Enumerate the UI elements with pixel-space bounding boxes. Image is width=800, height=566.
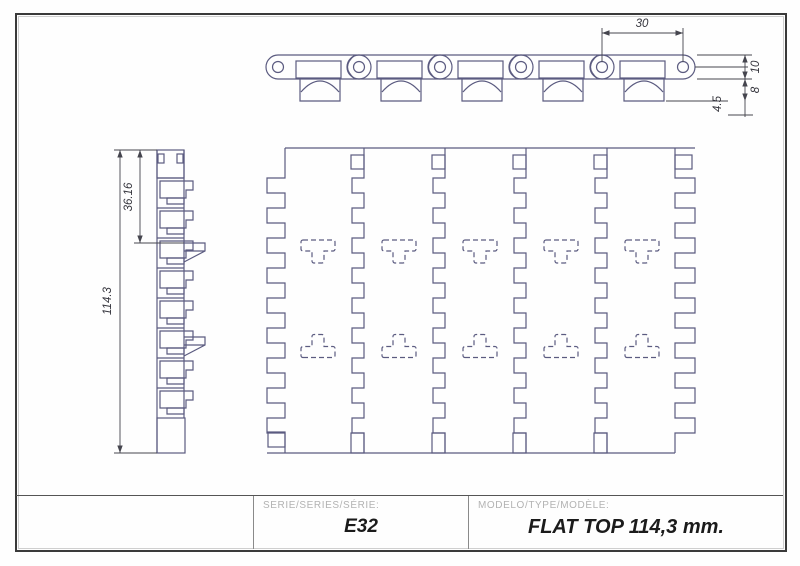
chain-link xyxy=(296,61,341,101)
title-block: SERIE/SERIES/SÉRIE: E32 MODELO/TYPE/MODÈ… xyxy=(16,495,783,549)
chain-link xyxy=(428,55,503,101)
plan-corner-slot xyxy=(675,155,692,169)
plan-left-edge xyxy=(267,148,285,453)
model-label: MODELO/TYPE/MODÈLE: xyxy=(478,500,609,511)
plan-hidden-tabs-upper xyxy=(301,240,659,263)
side-knuckle xyxy=(157,388,193,414)
chain-link xyxy=(347,55,422,101)
side-knuckle xyxy=(157,358,193,384)
model-cell: MODELO/TYPE/MODÈLE: FLAT TOP 114,3 mm. xyxy=(468,496,783,549)
series-value: E32 xyxy=(254,516,468,538)
side-tab-upper xyxy=(184,243,205,262)
plan-module-boundary xyxy=(432,148,445,453)
plan-module-boundary xyxy=(594,148,607,453)
chain-link xyxy=(590,55,665,101)
side-knuckle xyxy=(157,178,193,204)
model-value: FLAT TOP 114,3 mm. xyxy=(469,516,783,539)
drawing-canvas: 30 10 8 4.5 xyxy=(0,0,800,566)
plan-corner-slot xyxy=(268,432,285,447)
dim-overall-width: 114.3 xyxy=(102,286,114,315)
side-top-notch xyxy=(177,154,183,163)
dim-plate-thickness: 10 xyxy=(750,60,762,73)
side-view-module-end xyxy=(157,150,205,453)
title-block-empty-cell xyxy=(16,496,253,549)
side-knuckle xyxy=(157,328,193,354)
series-cell: SERIE/SERIES/SÉRIE: E32 xyxy=(253,496,468,549)
plan-view-belt-top xyxy=(267,148,695,453)
side-top-notch xyxy=(158,154,164,163)
plan-module-boundary xyxy=(513,148,526,453)
side-bottom-cap xyxy=(157,418,185,453)
dim-foot-height: 8 xyxy=(750,86,762,93)
dim-pitch: 30 xyxy=(636,18,649,30)
pin-hole xyxy=(678,62,689,73)
pin-hole xyxy=(273,62,284,73)
plan-module-boundary xyxy=(351,148,364,453)
dim-foot-width: 4.5 xyxy=(712,95,724,112)
side-knuckle xyxy=(157,298,193,324)
top-view-dimensions xyxy=(602,28,753,117)
top-view-chain-profile xyxy=(266,55,695,101)
series-label: SERIE/SERIES/SÉRIE: xyxy=(263,500,379,511)
plan-hidden-tabs-lower xyxy=(301,335,659,358)
chain-link xyxy=(509,55,584,101)
dim-top-section: 36.16 xyxy=(123,182,135,211)
side-knuckle xyxy=(157,268,193,294)
side-knuckle xyxy=(157,208,193,234)
plan-right-edge xyxy=(675,148,695,453)
drawing-sheet: 30 10 8 4.5 xyxy=(0,0,800,566)
